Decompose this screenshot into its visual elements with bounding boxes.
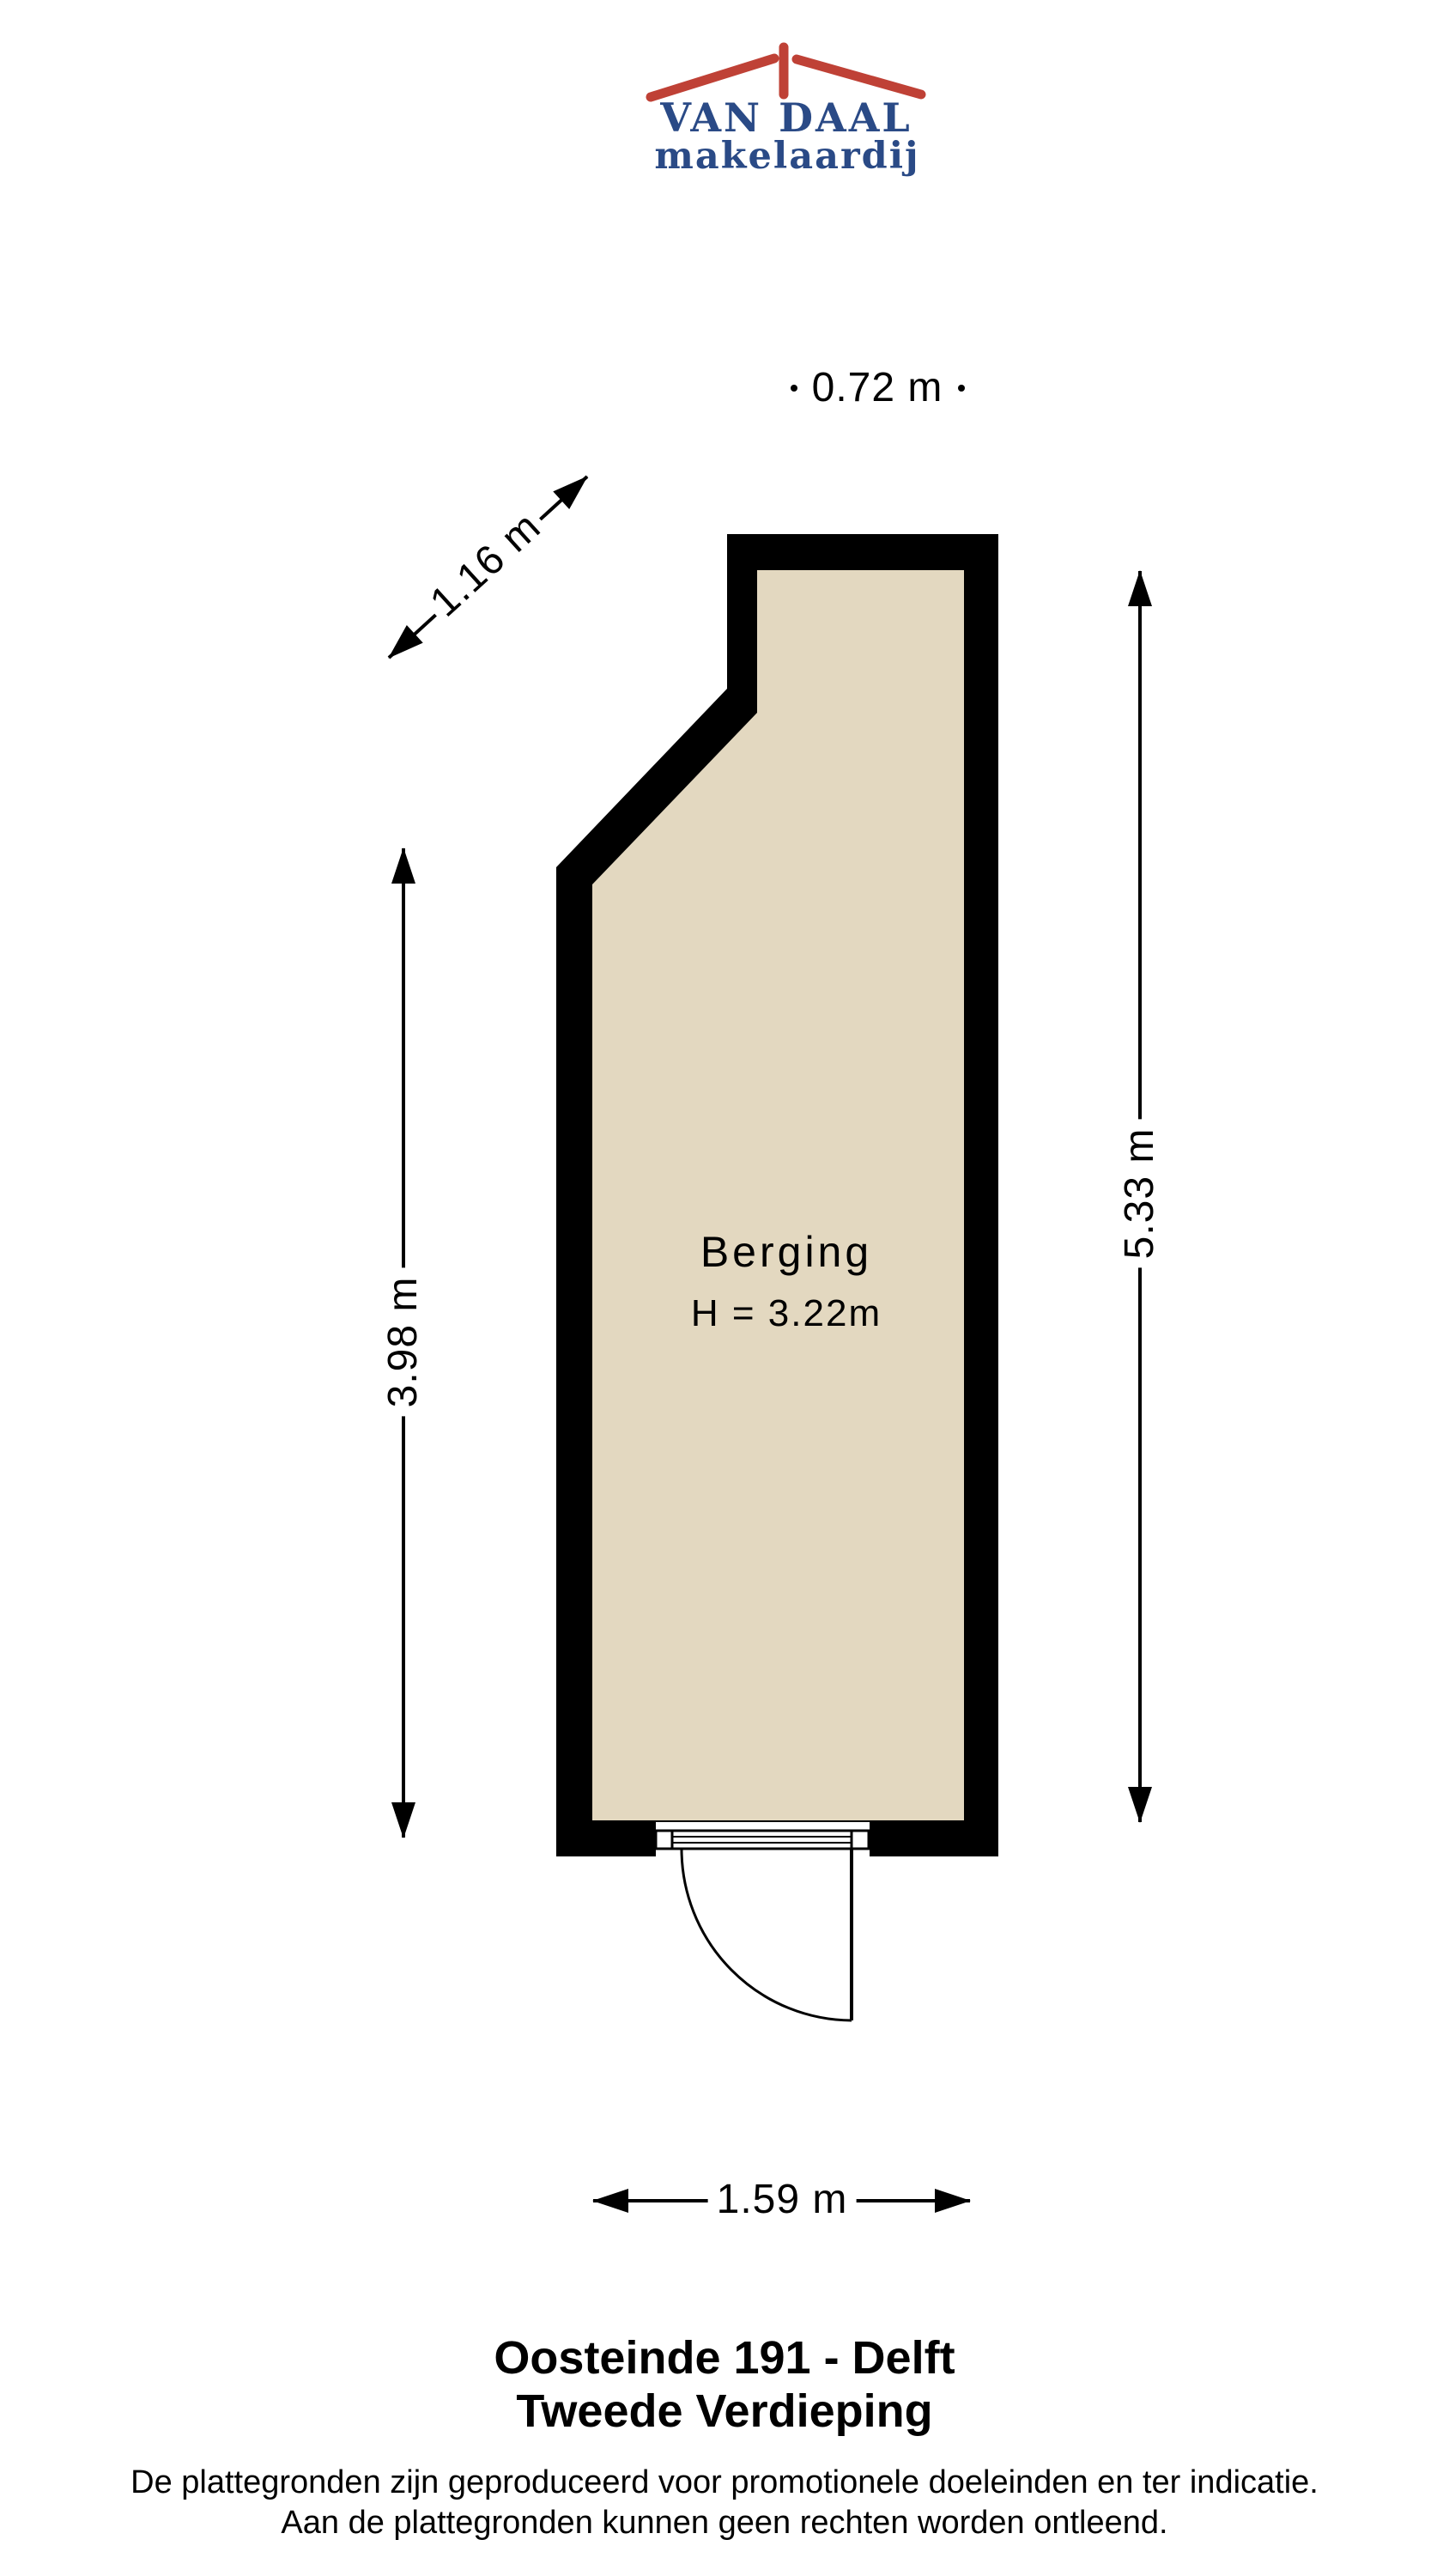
room-floor	[592, 570, 964, 1820]
disclaimer-line2: Aan de plattegronden kunnen geen rechten…	[130, 2503, 1319, 2543]
dimension-label-left: 3.98 m	[379, 1268, 427, 1417]
page-title: Oosteinde 191 - Delft Tweede Verdieping	[494, 2331, 955, 2438]
dimension-dot-right	[958, 385, 965, 392]
room-height-label: H = 3.22m	[691, 1295, 882, 1333]
door-swing-arc	[682, 1849, 852, 2020]
disclaimer-line1: De plattegronden zijn geproduceerd voor …	[130, 2463, 1319, 2503]
dimension-label-top: 0.72 m	[803, 364, 952, 412]
room-name-label: Berging	[700, 1230, 872, 1273]
dimension-label-bottom: 1.59 m	[708, 2176, 857, 2224]
floorplan-page: VAN DAAL makelaardij	[0, 0, 1449, 2576]
door-jamb-right	[852, 1831, 869, 1849]
page-title-line1: Oosteinde 191 - Delft	[494, 2331, 955, 2385]
disclaimer: De plattegronden zijn geproduceerd voor …	[130, 2463, 1319, 2543]
dimension-label-right: 5.33 m	[1116, 1120, 1164, 1268]
door-threshold	[672, 1831, 852, 1849]
door-jamb-left	[656, 1831, 672, 1849]
page-title-line2: Tweede Verdieping	[494, 2385, 955, 2438]
dimension-dot-left	[791, 385, 797, 392]
